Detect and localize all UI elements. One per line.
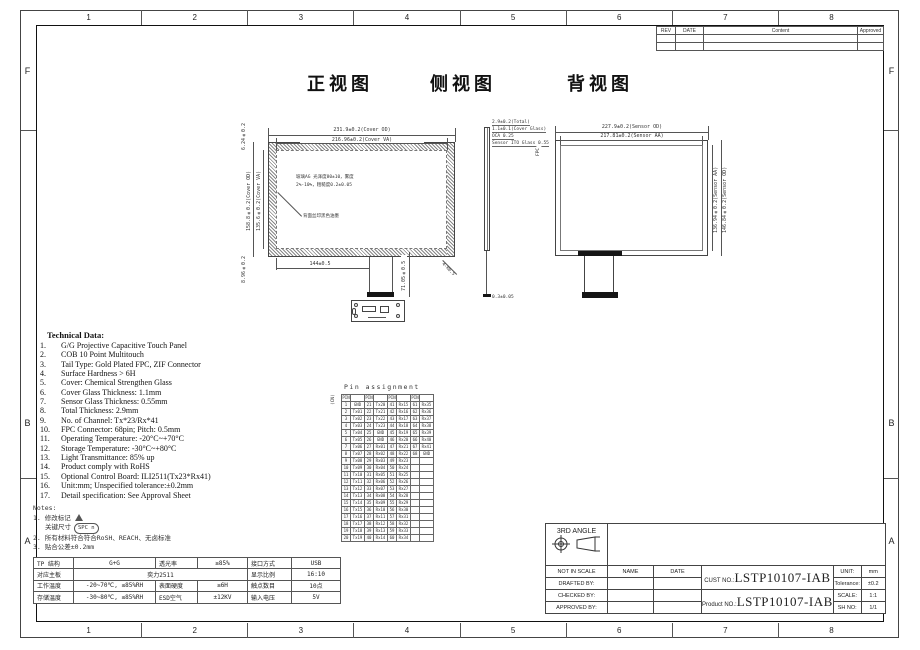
pin-signal: Tx02 bbox=[351, 416, 365, 423]
dim-sensor-aa-height: 136.94±0.2(Sensor AA) bbox=[713, 158, 719, 242]
dim-cover-od-width: 231.9±0.2(Cover OD) bbox=[300, 127, 424, 133]
pin-number: 1 bbox=[342, 402, 351, 409]
technical-data-item-text: Optional Control Board: ILI2511(Tx23*Rx4… bbox=[61, 472, 211, 481]
pin-signal: Tx13 bbox=[351, 493, 365, 500]
pin-signal: Rx34 bbox=[397, 535, 411, 542]
zone-number: 3 bbox=[248, 10, 354, 25]
pin-signal: Rx07 bbox=[374, 486, 388, 493]
pin-signal: Rx21 bbox=[397, 444, 411, 451]
technical-data-item-text: No. of Channel: Tx*23/Rx*41 bbox=[61, 416, 159, 425]
pin-number bbox=[411, 472, 420, 479]
pin-signal bbox=[420, 458, 434, 465]
tolerance-value: ±0.2 bbox=[861, 578, 885, 590]
spec-value: 5V bbox=[292, 592, 341, 603]
pin-signal: Tx15 bbox=[351, 507, 365, 514]
checked-by-name bbox=[608, 590, 654, 602]
pin-signal: Tx11 bbox=[351, 479, 365, 486]
pin-number: 35 bbox=[365, 500, 374, 507]
back-fpc-tail bbox=[584, 256, 614, 294]
pin-number: 30 bbox=[365, 465, 374, 472]
pin-signal: Rx40 bbox=[420, 437, 434, 444]
pin-number: 29 bbox=[365, 458, 374, 465]
dim-line bbox=[276, 143, 447, 144]
pin-number: 5 bbox=[342, 430, 351, 437]
product-no-cell: Product NO.:LSTP10107-IAB bbox=[702, 590, 834, 614]
dim-sensor-aa-width: 217.81±0.2(Sensor AA) bbox=[575, 133, 689, 139]
pin-number: 54 bbox=[388, 493, 397, 500]
pin-signal bbox=[420, 521, 434, 528]
ink-note: 背面丝印黑色油墨 bbox=[303, 214, 339, 219]
zone-tick bbox=[21, 130, 36, 131]
pin-number: 48 bbox=[388, 451, 397, 458]
pin-signal: Rx12 bbox=[374, 521, 388, 528]
pin-row: 11Tx1031Rx0551Rx25 bbox=[342, 472, 434, 479]
technical-data-item-text: Tail Type: Gold Plated FPC, ZIF Connecto… bbox=[61, 360, 201, 369]
pin-number: 16 bbox=[342, 507, 351, 514]
pin-signal: Tx09 bbox=[351, 465, 365, 472]
pin-number: 21 bbox=[365, 402, 374, 409]
zone-number: 6 bbox=[567, 623, 673, 638]
spec-value: 16:10 bbox=[292, 569, 341, 580]
technical-data-item: 11.Operating Temperature: -20°C~+70°C bbox=[38, 434, 338, 443]
ag-note-line2: 2%-10%，粗糙度0.2±0.05 bbox=[296, 183, 352, 188]
side-view-title: 侧视图 bbox=[430, 70, 496, 96]
name-header: NAME bbox=[608, 566, 654, 578]
date-header: DATE bbox=[654, 566, 702, 578]
zone-number: 6 bbox=[567, 10, 673, 25]
zone-tick bbox=[884, 478, 899, 479]
dim-line bbox=[560, 140, 702, 141]
pin-signal: Rx08 bbox=[374, 493, 388, 500]
spec-label: 工作温度 bbox=[34, 580, 74, 591]
zone-number: 1 bbox=[36, 623, 142, 638]
pin-number bbox=[411, 458, 420, 465]
pin-signal bbox=[420, 493, 434, 500]
pin-signal-header bbox=[420, 395, 434, 402]
spec-value: -30~80℃, ≤85%RH bbox=[74, 592, 156, 603]
zone-number: 1 bbox=[36, 10, 142, 25]
pin-number: 44 bbox=[388, 423, 397, 430]
technical-data-item-text: Cover Glass Thickness: 1.1mm bbox=[61, 388, 161, 397]
pin-number: 34 bbox=[365, 493, 374, 500]
pin-number: 20 bbox=[342, 535, 351, 542]
dim-cover-va-height: 135.6±0.2(Cover VA) bbox=[256, 158, 262, 244]
pin-signal: Rx05 bbox=[374, 472, 388, 479]
pin-row: 9Tx0829Rx0349Rx23 bbox=[342, 458, 434, 465]
pin-number: 22 bbox=[365, 409, 374, 416]
pin-signal: Rx41 bbox=[420, 444, 434, 451]
fpc-connector bbox=[367, 292, 394, 297]
pin-signal: Rx32 bbox=[397, 521, 411, 528]
technical-data-item: 1.G/G Projective Capacitive Touch Panel bbox=[38, 341, 338, 350]
pin-number: 51 bbox=[388, 472, 397, 479]
front-view-title: 正视图 bbox=[307, 70, 373, 96]
spc-oval-mark: SPC n bbox=[74, 523, 99, 534]
pin-number: 50 bbox=[388, 465, 397, 472]
spec-value: 10点 bbox=[292, 580, 341, 591]
pin-number: 47 bbox=[388, 444, 397, 451]
pin-number: 3 bbox=[342, 416, 351, 423]
pin-number: 12 bbox=[342, 479, 351, 486]
pin-number: 17 bbox=[342, 514, 351, 521]
zone-letter-left-b: B bbox=[20, 418, 35, 428]
dim-line bbox=[276, 268, 369, 269]
zone-letter-right-b: B bbox=[884, 418, 899, 428]
technical-data-item-number: 2. bbox=[38, 350, 61, 359]
unit-value: mm bbox=[861, 566, 885, 578]
dim-line bbox=[253, 142, 254, 257]
spec-label: 输入电压 bbox=[248, 592, 292, 603]
technical-data-item-number: 3. bbox=[38, 360, 61, 369]
pin-signal bbox=[420, 500, 434, 507]
pin-row: 5Tx0425GND45Rx1965Rx39 bbox=[342, 430, 434, 437]
drawing-sheet: 12345678 12345678 F B A F B A REV DATE C… bbox=[0, 0, 920, 650]
pin-number: 32 bbox=[365, 479, 374, 486]
technical-data-item-number: 15. bbox=[38, 472, 61, 481]
drafted-by-date bbox=[654, 578, 702, 590]
pin-signal: Rx23 bbox=[397, 458, 411, 465]
ext-line bbox=[455, 128, 456, 142]
pin-signal-header bbox=[374, 395, 388, 402]
pin-row: 14Tx1334Rx0854Rx28 bbox=[342, 493, 434, 500]
side-fpc-tail bbox=[486, 251, 487, 295]
spec-label: TP 结构 bbox=[34, 558, 74, 569]
pin-signal: Tx03 bbox=[351, 423, 365, 430]
pin-number: 31 bbox=[365, 472, 374, 479]
technical-data-item-text: Cover: Chemical Strengthen Glass bbox=[61, 378, 172, 387]
technical-data-item-number: 9. bbox=[38, 416, 61, 425]
pin-signal: Rx36 bbox=[420, 409, 434, 416]
pin-signal bbox=[420, 528, 434, 535]
pin-number: 9 bbox=[342, 458, 351, 465]
zone-letter-left-f: F bbox=[20, 66, 35, 76]
pin-row: 19Tx1839Rx1359Rx33 bbox=[342, 528, 434, 535]
scale-label: SCALE: bbox=[833, 590, 861, 602]
technical-data-item: 5.Cover: Chemical Strengthen Glass bbox=[38, 378, 338, 387]
board-component bbox=[380, 306, 389, 313]
pin-signal: Rx37 bbox=[420, 416, 434, 423]
pin-signal: Rx24 bbox=[397, 465, 411, 472]
technical-data-item-number: 4. bbox=[38, 369, 61, 378]
pin-signal: GND bbox=[374, 430, 388, 437]
note-item-1b-text: 关键尺寸 bbox=[45, 523, 71, 531]
pin-signal: Rx16 bbox=[397, 409, 411, 416]
zone-number: 5 bbox=[461, 10, 567, 25]
dim-sensor-od-height: 146.84±0.2(Sensor OD) bbox=[722, 156, 728, 244]
pin-number: 28 bbox=[365, 451, 374, 458]
pin-number: 46 bbox=[388, 437, 397, 444]
pin-signal: Rx06 bbox=[374, 479, 388, 486]
zone-number: 8 bbox=[779, 10, 884, 25]
pin-number bbox=[411, 500, 420, 507]
technical-data-item-text: Operating Temperature: -20°C~+70°C bbox=[61, 434, 184, 443]
pin-signal: Tx07 bbox=[351, 451, 365, 458]
pin-row: 7Tx0627Rx0147Rx2167Rx41 bbox=[342, 444, 434, 451]
technical-data-item-text: G/G Projective Capacitive Touch Panel bbox=[61, 341, 187, 350]
pin-number: 18 bbox=[342, 521, 351, 528]
pin-signal-header bbox=[351, 395, 365, 402]
technical-data-item: 6.Cover Glass Thickness: 1.1mm bbox=[38, 388, 338, 397]
approved-by-name bbox=[608, 602, 654, 614]
third-angle-cell: 3RD ANGLE bbox=[546, 524, 608, 566]
technical-data-list: 1.G/G Projective Capacitive Touch Panel2… bbox=[38, 341, 338, 500]
technical-data-item-number: 7. bbox=[38, 397, 61, 406]
technical-data-item: 15.Optional Control Board: ILI2511(Tx23*… bbox=[38, 472, 338, 481]
product-no-value: LSTP10107-IAB bbox=[737, 594, 833, 609]
pin-row: 13Tx1233Rx0753Rx27 bbox=[342, 486, 434, 493]
spec-value: ±12KV bbox=[198, 592, 248, 603]
technical-data-item-number: 11. bbox=[38, 434, 61, 443]
pin-signal: Tx12 bbox=[351, 486, 365, 493]
dim-cover-va-width: 216.96±0.2(Cover VA) bbox=[300, 137, 424, 143]
revision-table: REV DATE Content Approved bbox=[656, 26, 884, 51]
pin-row: 20Tx1940Rx1460Rx34 bbox=[342, 535, 434, 542]
notes-title: Notes: bbox=[33, 504, 171, 513]
technical-data-item-text: FPC Connector: 68pin; Pitch: 0.5mm bbox=[61, 425, 180, 434]
pin-signal: Rx14 bbox=[374, 535, 388, 542]
pin-number: 2 bbox=[342, 409, 351, 416]
zone-numbers-bottom: 12345678 bbox=[36, 623, 884, 638]
pin-signal: Tx16 bbox=[351, 514, 365, 521]
technical-data-item-text: Detail specification: See Approval Sheet bbox=[61, 491, 191, 500]
spec-label: ESD空气 bbox=[156, 592, 198, 603]
pin-number: 66 bbox=[411, 437, 420, 444]
pin-signal: Rx30 bbox=[397, 507, 411, 514]
pin-number: 39 bbox=[365, 528, 374, 535]
third-angle-projection-icon bbox=[551, 535, 603, 553]
board-mark bbox=[368, 317, 386, 318]
ext-line bbox=[276, 138, 277, 150]
pin-signal: Tx10 bbox=[351, 472, 365, 479]
zone-letter-right-f: F bbox=[884, 66, 899, 76]
pin-number bbox=[411, 479, 420, 486]
spec-label: 显示比例 bbox=[248, 569, 292, 580]
technical-data-item-text: Total Thickness: 2.9mm bbox=[61, 406, 138, 415]
pin-signal: Rx29 bbox=[397, 500, 411, 507]
pin-number: 8 bbox=[342, 451, 351, 458]
pin-number bbox=[411, 514, 420, 521]
zone-number: 4 bbox=[354, 10, 460, 25]
technical-data-item: 12.Storage Temperature: -30°C~+80°C bbox=[38, 444, 338, 453]
spec-label: 触点数目 bbox=[248, 580, 292, 591]
side-label-cover: 1.1±0.1(Cover Glass) bbox=[492, 127, 546, 133]
pin-number: 45 bbox=[388, 430, 397, 437]
spec-label: 对应主板 bbox=[34, 569, 74, 580]
pin-number: 68 bbox=[411, 451, 420, 458]
pin-signal bbox=[420, 486, 434, 493]
technical-data-item-number: 13. bbox=[38, 453, 61, 462]
ext-line bbox=[555, 126, 556, 140]
dim-cover-od-height: 158.8±0.2(Cover OD) bbox=[246, 155, 252, 247]
ext-line bbox=[702, 136, 703, 145]
pin-row: 17Tx1637Rx1157Rx31 bbox=[342, 514, 434, 521]
side-label-fpc: FPC bbox=[536, 145, 541, 159]
checked-by-label: CHECKED BY: bbox=[546, 590, 608, 602]
not-in-scale-label: NOT IN SCALE bbox=[546, 566, 608, 578]
rev-header-date: DATE bbox=[676, 27, 704, 35]
pin-connector-label: (CN) bbox=[331, 385, 336, 405]
pin-signal: Rx15 bbox=[397, 402, 411, 409]
pin-signal: Tx18 bbox=[351, 528, 365, 535]
pin-signal: GND bbox=[351, 402, 365, 409]
note-item-1: 1. 修改标记 bbox=[33, 513, 171, 523]
pin-signal: Tx08 bbox=[351, 458, 365, 465]
pin-number: 62 bbox=[411, 409, 420, 416]
pin-number: 10 bbox=[342, 465, 351, 472]
revision-triangle-icon bbox=[75, 514, 83, 521]
cust-no-cell: CUST NO.:LSTP10107-IAB bbox=[702, 566, 834, 590]
pin-number: 26 bbox=[365, 437, 374, 444]
pin-number: 11 bbox=[342, 472, 351, 479]
pin-signal bbox=[420, 514, 434, 521]
pin-number: 6 bbox=[342, 437, 351, 444]
third-angle-label: 3RD ANGLE bbox=[546, 524, 607, 535]
spec-label: 表面硬度 bbox=[156, 580, 198, 591]
front-bezel-hatch-top bbox=[269, 143, 454, 150]
pin-signal: Rx25 bbox=[397, 472, 411, 479]
technical-data-item: 2.COB 10 Point Multitouch bbox=[38, 350, 338, 359]
pin-number: 55 bbox=[388, 500, 397, 507]
technical-data-item-number: 1. bbox=[38, 341, 61, 350]
back-aa-outline bbox=[560, 145, 703, 251]
front-va-outline bbox=[276, 150, 447, 249]
pin-number: 15 bbox=[342, 500, 351, 507]
tolerance-label: Tolerance: bbox=[833, 578, 861, 590]
technical-data-item: 13.Light Transmittance: 85% up bbox=[38, 453, 338, 462]
fpc-tail-edge bbox=[392, 257, 393, 292]
pin-number: 67 bbox=[411, 444, 420, 451]
approved-by-label: APPROVED BY: bbox=[546, 602, 608, 614]
pin-signal: Tx20 bbox=[374, 402, 388, 409]
spec-value: -20~70℃, ≤85%RH bbox=[74, 580, 156, 591]
pin-number: 23 bbox=[365, 416, 374, 423]
pin-signal: Rx35 bbox=[420, 402, 434, 409]
spec-row: 存储温度-30~80℃, ≤85%RHESD空气±12KV输入电压5V bbox=[34, 592, 341, 603]
technical-data-item-number: 10. bbox=[38, 425, 61, 434]
back-fpc-end bbox=[582, 292, 618, 298]
rev-header-rev: REV bbox=[657, 27, 676, 35]
zone-numbers-top: 12345678 bbox=[36, 10, 884, 25]
spec-value: 奕力2511 bbox=[74, 569, 248, 580]
technical-data-item: 9.No. of Channel: Tx*23/Rx*41 bbox=[38, 416, 338, 425]
front-bezel-hatch-bottom bbox=[269, 249, 454, 256]
pin-col-header: PIN bbox=[388, 395, 397, 402]
pin-signal: Rx31 bbox=[397, 514, 411, 521]
pin-number bbox=[411, 521, 420, 528]
pin-signal bbox=[420, 479, 434, 486]
dim-line bbox=[268, 135, 455, 136]
pin-number: 25 bbox=[365, 430, 374, 437]
pin-number: 7 bbox=[342, 444, 351, 451]
side-label-oca: OCA 0.25 bbox=[492, 134, 514, 140]
pin-signal: GND bbox=[420, 451, 434, 458]
title-block: 3RD ANGLE NOT IN SCALE NAME DATE CUST NO… bbox=[545, 523, 886, 614]
pin-row: 6Tx0526GND46Rx2066Rx40 bbox=[342, 437, 434, 444]
pin-signal: Tx14 bbox=[351, 500, 365, 507]
scale-value: 1:1 bbox=[861, 590, 885, 602]
pin-signal-header bbox=[397, 395, 411, 402]
ext-line bbox=[447, 138, 448, 150]
spec-value: ≥6H bbox=[198, 580, 248, 591]
technical-data-item: 17.Detail specification: See Approval Sh… bbox=[38, 491, 338, 500]
pin-number: 14 bbox=[342, 493, 351, 500]
technical-data-item: 7.Sensor Glass Thickness: 0.55mm bbox=[38, 397, 338, 406]
spec-label: 存储温度 bbox=[34, 592, 74, 603]
technical-data-item-number: 16. bbox=[38, 481, 61, 490]
pin-number: 52 bbox=[388, 479, 397, 486]
technical-data-item-text: Product comply with RoHS bbox=[61, 462, 150, 471]
technical-data-item-number: 5. bbox=[38, 378, 61, 387]
pin-signal: Rx03 bbox=[374, 458, 388, 465]
spec-row: 对应主板奕力2511显示比例16:10 bbox=[34, 569, 341, 580]
ag-note-line1: 玻璃AG 光泽度80±10，雾度 bbox=[296, 175, 354, 180]
checked-by-date bbox=[654, 590, 702, 602]
pin-number: 19 bbox=[342, 528, 351, 535]
technical-data-item: 3.Tail Type: Gold Plated FPC, ZIF Connec… bbox=[38, 360, 338, 369]
spec-value: G+G bbox=[74, 558, 156, 569]
dim-line bbox=[263, 150, 264, 249]
pin-signal: Rx26 bbox=[397, 479, 411, 486]
zone-number: 5 bbox=[461, 623, 567, 638]
technical-data-item-text: Surface Hardness > 6H bbox=[61, 369, 136, 378]
rev-header-content: Content bbox=[704, 27, 858, 35]
pin-signal: Rx28 bbox=[397, 493, 411, 500]
rev-empty-row bbox=[657, 35, 884, 43]
drafted-by-name bbox=[608, 578, 654, 590]
pin-number: 60 bbox=[388, 535, 397, 542]
dim-line bbox=[409, 252, 410, 297]
pin-signal bbox=[420, 507, 434, 514]
spec-row: TP 结构G+G透光率≥85%接口方式USB bbox=[34, 558, 341, 569]
pin-signal: Tx19 bbox=[351, 535, 365, 542]
ext-line bbox=[708, 126, 709, 140]
technical-data-item: 4.Surface Hardness > 6H bbox=[38, 369, 338, 378]
pin-signal: Rx39 bbox=[420, 430, 434, 437]
pin-signal: Rx13 bbox=[374, 528, 388, 535]
zone-letter-right-a: A bbox=[884, 536, 899, 546]
pin-number: 38 bbox=[365, 521, 374, 528]
pin-number: 57 bbox=[388, 514, 397, 521]
technical-data-item: 10.FPC Connector: 68pin; Pitch: 0.5mm bbox=[38, 425, 338, 434]
board-component bbox=[362, 306, 376, 312]
pin-row: 16Tx1536Rx1056Rx30 bbox=[342, 507, 434, 514]
board-hole bbox=[354, 303, 358, 307]
front-bezel-hatch-right bbox=[447, 143, 454, 256]
pin-col-header: PIN bbox=[365, 395, 374, 402]
pin-number: 43 bbox=[388, 416, 397, 423]
pin-row: 8Tx0728Rx0248Rx2268GND bbox=[342, 451, 434, 458]
technical-data-item-text: COB 10 Point Multitouch bbox=[61, 350, 144, 359]
pin-signal: Tx22 bbox=[374, 416, 388, 423]
pin-row: 10Tx0930Rx0450Rx24 bbox=[342, 465, 434, 472]
pin-number: 40 bbox=[365, 535, 374, 542]
pin-number: 65 bbox=[411, 430, 420, 437]
dim-tail-length: 71.05±0.5 bbox=[401, 255, 407, 297]
dim-sensor-od-width: 227.9±0.2(Sensor OD) bbox=[575, 124, 689, 130]
zone-number: 8 bbox=[779, 623, 884, 638]
pin-row: 15Tx1435Rx0955Rx29 bbox=[342, 500, 434, 507]
dim-top-left: 6.24±0.2 bbox=[241, 122, 247, 150]
pin-col-header: PIN bbox=[342, 395, 351, 402]
rev-header-approved: Approved bbox=[858, 27, 884, 35]
technical-data-item-number: 8. bbox=[38, 406, 61, 415]
technical-data-item-text: Sensor Glass Thickness: 0.55mm bbox=[61, 397, 168, 406]
pin-number: 61 bbox=[411, 402, 420, 409]
zone-number: 4 bbox=[354, 623, 460, 638]
pin-signal: Tx01 bbox=[351, 409, 365, 416]
title-block-empty-cell bbox=[608, 524, 886, 566]
note-item-1b: 关键尺寸SPC n bbox=[33, 523, 171, 534]
